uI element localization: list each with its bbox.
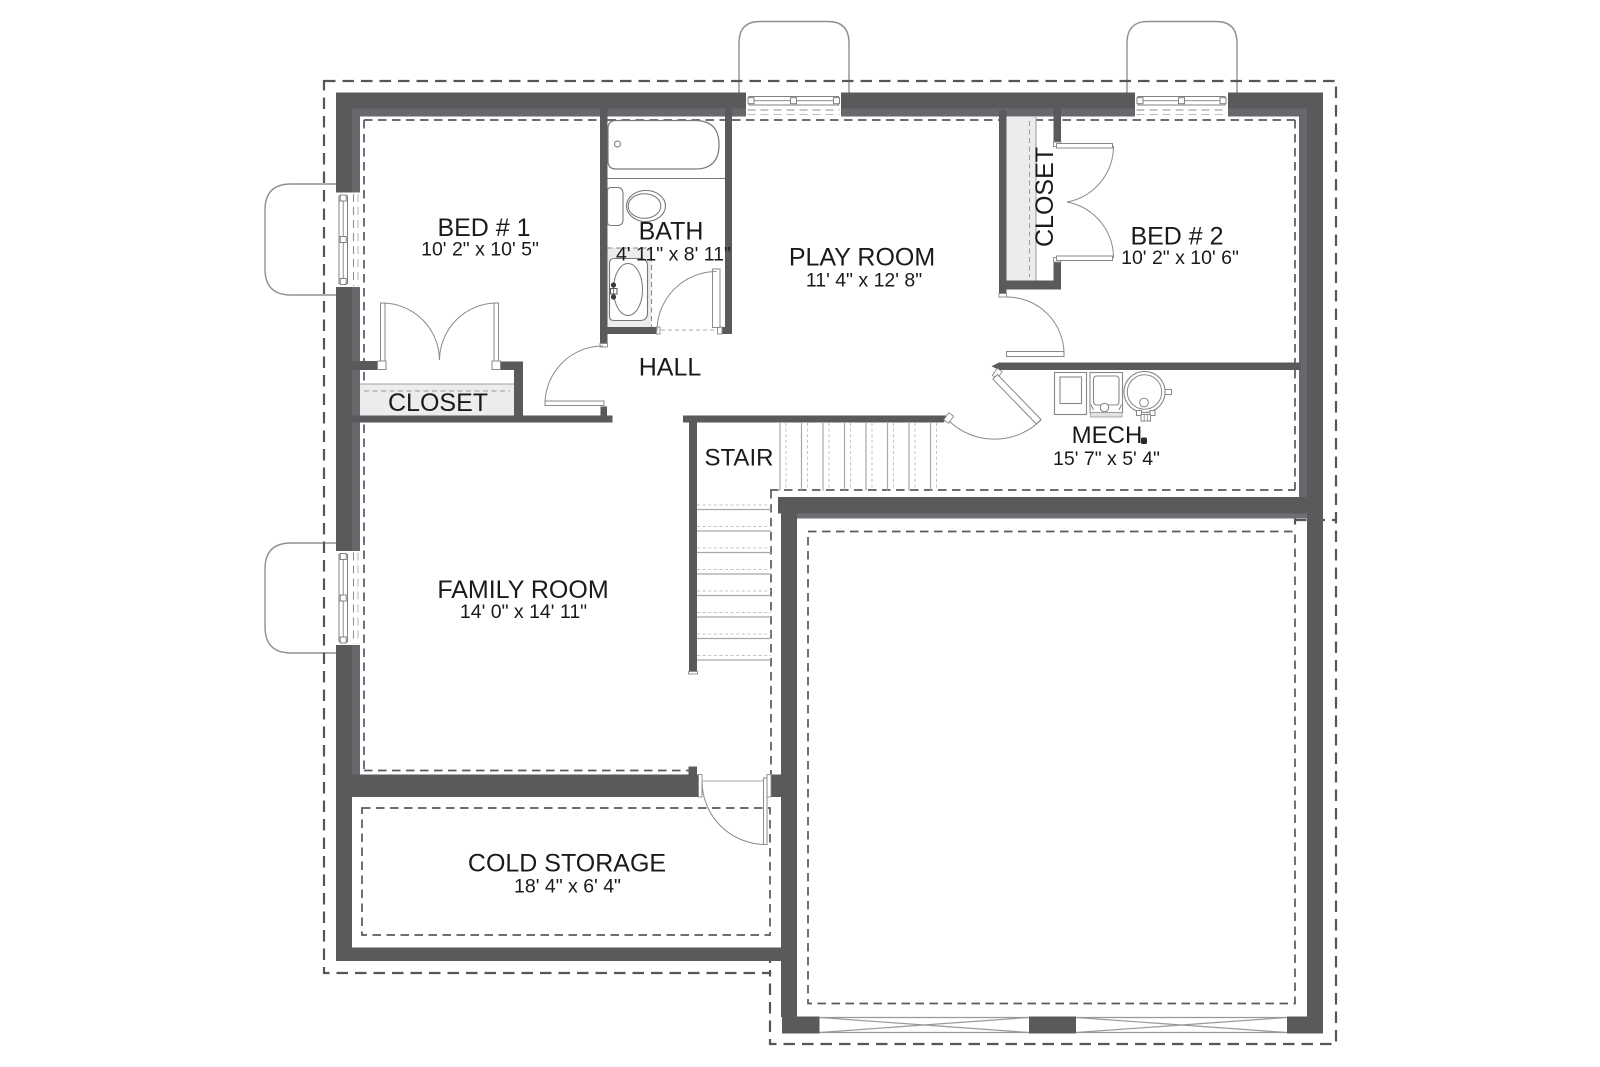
svg-text:STAIR: STAIR: [705, 445, 774, 472]
svg-text:PLAY ROOM: PLAY ROOM: [789, 244, 935, 272]
svg-text:11' 4" x 12' 8": 11' 4" x 12' 8": [806, 270, 922, 292]
svg-text:BATH: BATH: [639, 218, 704, 246]
svg-text:HALL: HALL: [639, 354, 702, 382]
svg-text:14' 0" x 14' 11": 14' 0" x 14' 11": [460, 601, 587, 623]
svg-text:CLOSET: CLOSET: [388, 389, 488, 417]
svg-text:MECH: MECH: [1072, 422, 1143, 449]
svg-text:FAMILY ROOM: FAMILY ROOM: [437, 576, 608, 604]
svg-text:COLD STORAGE: COLD STORAGE: [468, 850, 666, 878]
svg-text:10' 2" x 10' 6": 10' 2" x 10' 6": [1121, 247, 1239, 269]
svg-text:10' 2" x 10' 5": 10' 2" x 10' 5": [421, 239, 539, 261]
svg-text:CLOSET: CLOSET: [1031, 147, 1059, 247]
svg-text:4' 11" x 8' 11": 4' 11" x 8' 11": [616, 244, 731, 266]
svg-text:15' 7" x 5' 4": 15' 7" x 5' 4": [1053, 448, 1160, 470]
svg-text:18' 4" x 6' 4": 18' 4" x 6' 4": [514, 876, 621, 898]
